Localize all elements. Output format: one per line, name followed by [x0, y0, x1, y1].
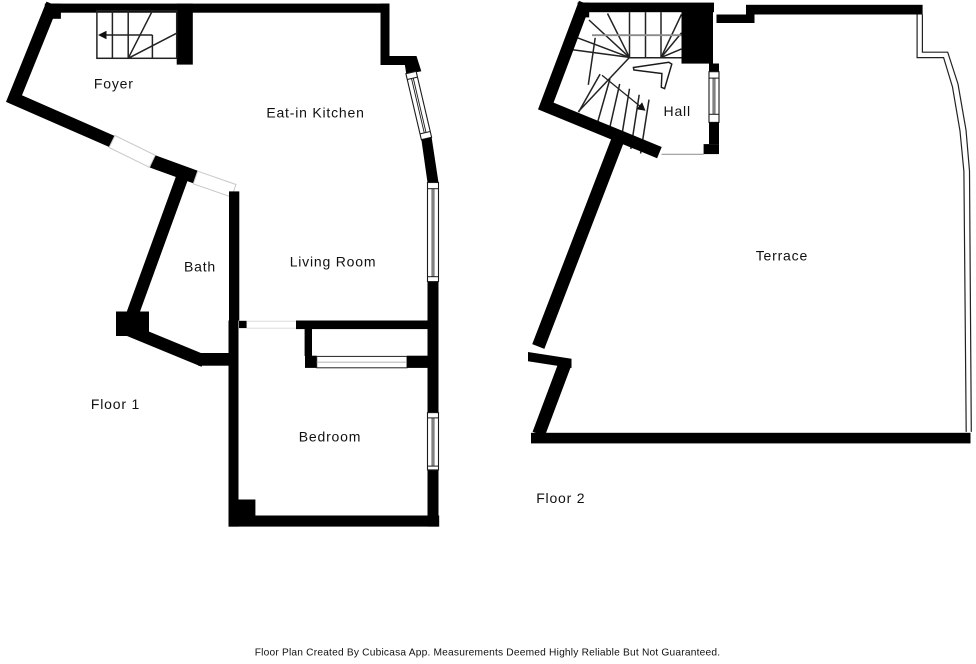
svg-text:Living Room: Living Room: [290, 253, 377, 269]
svg-text:Bedroom: Bedroom: [299, 428, 361, 444]
svg-text:Hall: Hall: [664, 103, 691, 119]
svg-text:Floor Plan Created By Cubicasa: Floor Plan Created By Cubicasa App. Meas…: [255, 648, 721, 659]
svg-text:Eat-in Kitchen: Eat-in Kitchen: [266, 105, 364, 121]
svg-text:Terrace: Terrace: [756, 248, 808, 264]
svg-text:Foyer: Foyer: [94, 76, 134, 92]
svg-text:Bath: Bath: [184, 259, 216, 275]
svg-text:Floor 2: Floor 2: [536, 490, 585, 506]
svg-text:Floor 1: Floor 1: [91, 396, 140, 412]
